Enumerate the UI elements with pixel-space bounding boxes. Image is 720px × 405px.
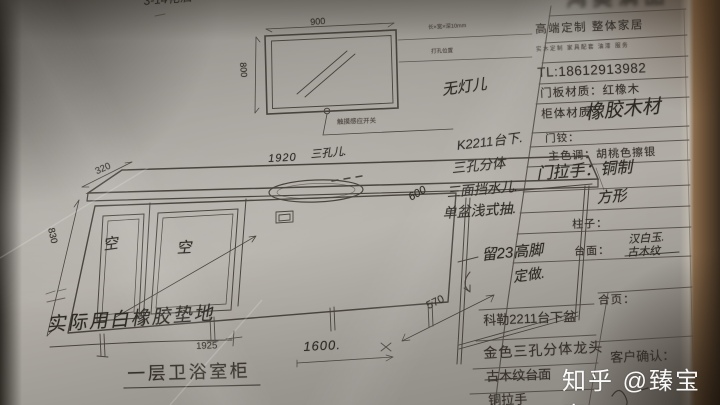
hinge-label: 合页： (598, 295, 636, 308)
mirror-width-dim: 900 (310, 17, 326, 27)
mirror-hole-note: 打孔位置 (431, 49, 453, 55)
dim-1925: 1925 (196, 341, 217, 351)
countertop-label: 台面： (574, 246, 610, 258)
touch-switch-note: 触摸感应开关 (337, 119, 376, 127)
zhihu-watermark: 知乎 @臻宝寓 (562, 361, 720, 405)
countertop-value-old: 古木纹 (627, 246, 661, 259)
item-basin: 科勒2211台下盆 (483, 310, 576, 327)
drawing-title: 一层卫浴室柜 (127, 362, 250, 383)
empty-label-1: 空 (102, 236, 119, 253)
mirror-height-dim: 800 (238, 62, 248, 78)
pillar-label: 柱子： (572, 219, 608, 231)
handle-shape: 方形 (596, 188, 627, 206)
empty-label-2: 空 (176, 240, 192, 256)
dim-1920: 1920 (268, 153, 297, 165)
item-handle: 铜拉手 (488, 393, 527, 405)
dim-830: 830 (46, 227, 59, 244)
door-material-value: 红橡木 (602, 84, 640, 98)
item-countertop: 古木纹台面 (486, 368, 551, 383)
dim-1600: 1600. (303, 338, 341, 353)
main-color-label: 主色调： (548, 149, 596, 163)
leg-note-2: 定做. (512, 266, 546, 284)
door-material-label: 门板材质： (540, 85, 603, 100)
door-hinge-label: 门铰： (545, 133, 580, 145)
photographed-order-sheet: 3-14花洒 900 800 长×宽×深10mm 打孔位置 触摸感应开关 无灯儿… (0, 0, 720, 405)
